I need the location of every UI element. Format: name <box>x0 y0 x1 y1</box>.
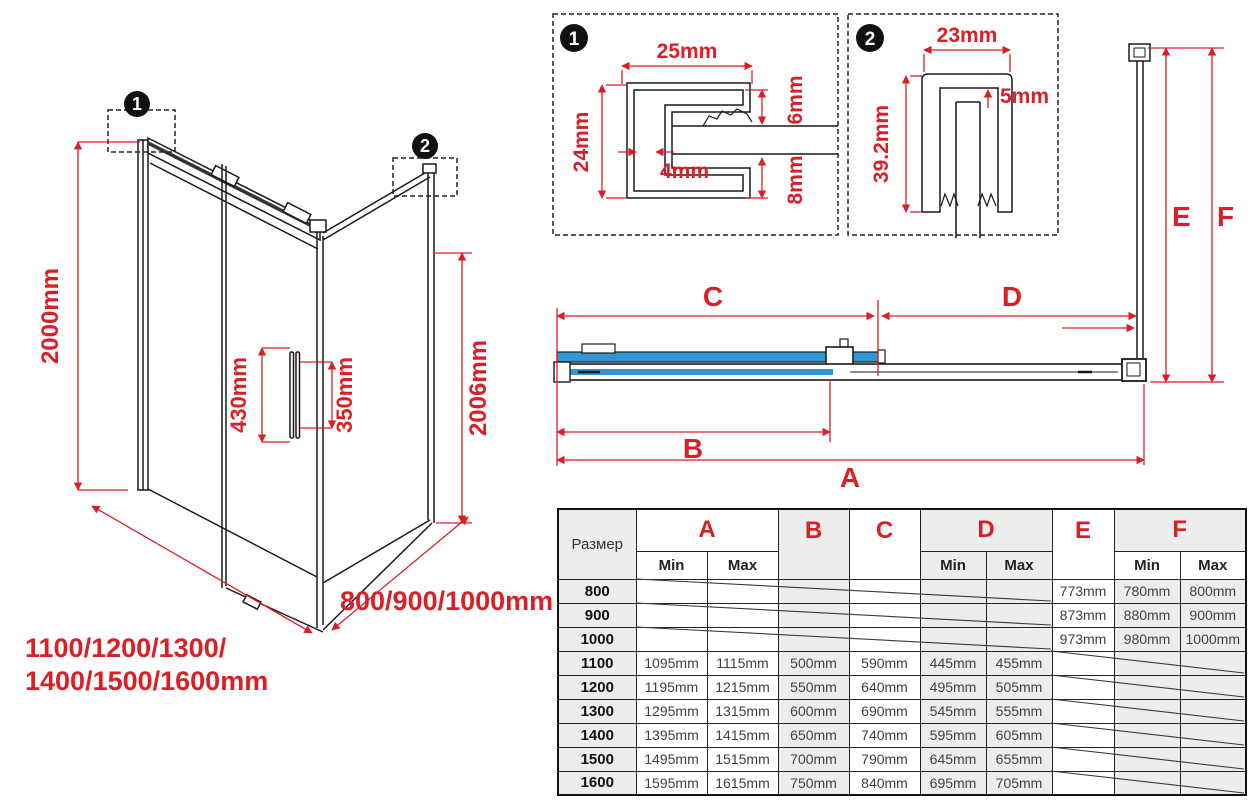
dim-e-label: E <box>1172 201 1191 232</box>
dim-5mm-label: 5mm <box>1000 85 1049 108</box>
dim-25mm-label: 25mm <box>657 40 718 63</box>
table-row: 1300 1295mm 1315mm 600mm 690mm 545mm 555… <box>558 699 1246 723</box>
f-min-header: Min <box>1114 551 1180 579</box>
col-header-f: F <box>1114 509 1246 551</box>
table-row: 900 873mm 880mm 900mm <box>558 603 1246 627</box>
a-max-header: Max <box>707 551 778 579</box>
dim-39mm-label: 39.2mm <box>870 105 893 183</box>
door-handle <box>290 352 300 438</box>
corner-bracket <box>310 220 326 232</box>
dim-2000mm-label: 2000mm <box>37 268 64 364</box>
dim-a-label: A <box>840 462 860 493</box>
dim-2006mm-label: 2006mm <box>465 340 492 436</box>
track-right-cap <box>1122 359 1146 381</box>
bottom-edges <box>148 489 323 632</box>
detail-2-badge-number: 2 <box>865 29 876 50</box>
shower-enclosure-spec-sheet: 1 2 2000mm 2006mm 430mm 350mm <box>0 0 1250 800</box>
front-width-label-line1: 1100/1200/1300/ <box>25 633 227 663</box>
detail-2-callout: 2 23mm 5mm 39.2mm <box>848 14 1058 238</box>
detail-1-badge-number: 1 <box>569 29 580 50</box>
size-cell: 900 <box>558 603 636 627</box>
size-cell: 1400 <box>558 723 636 747</box>
f-max-header: Max <box>1180 551 1246 579</box>
col-header-a: A <box>636 509 778 551</box>
size-cell: 1200 <box>558 675 636 699</box>
col-header-c: C <box>849 509 920 579</box>
col-header-e: E <box>1052 509 1114 579</box>
top-rail <box>148 138 326 249</box>
dim-430mm-label: 430mm <box>226 357 251 433</box>
dim-430mm: 430mm <box>226 348 290 442</box>
dim-8mm-label: 8mm <box>784 155 807 204</box>
table-row: 800 773mm 780mm 800mm <box>558 579 1246 603</box>
badge-1-number: 1 <box>132 94 142 114</box>
table-row: 1000 973mm 980mm 1000mm <box>558 627 1246 651</box>
size-column-header: Размер <box>558 509 636 579</box>
front-width-label-line2: 1400/1500/1600mm <box>25 666 268 696</box>
size-cell: 800 <box>558 579 636 603</box>
dim-d-label: D <box>1002 281 1022 312</box>
dim-c-label: C <box>703 281 723 312</box>
table-row: 1400 1395mm 1415mm 650mm 740mm 595mm 605… <box>558 723 1246 747</box>
table-row: 1500 1495mm 1515mm 700mm 790mm 645mm 655… <box>558 747 1246 771</box>
dim-350mm-label: 350mm <box>332 357 357 433</box>
dim-6mm-label: 6mm <box>784 75 807 124</box>
dim-f-label: F <box>1217 201 1234 232</box>
wall-profile-left <box>138 140 148 490</box>
size-cell: 1300 <box>558 699 636 723</box>
col-header-b: B <box>778 509 849 579</box>
dim-2006mm: 2006mm <box>434 253 492 523</box>
dim-side-width: 800/900/1000mm <box>332 517 553 630</box>
dim-front-width: 1100/1200/1300/ 1400/1500/1600mm <box>25 506 312 696</box>
table-row: 1100 1095mm 1115mm 500mm 590mm 445mm 455… <box>558 651 1246 675</box>
size-cell: 1100 <box>558 651 636 675</box>
table-row: 1200 1195mm 1215mm 550mm 640mm 495mm 505… <box>558 675 1246 699</box>
dim-2000mm: 2000mm <box>37 142 140 490</box>
side-panel-plan <box>1129 44 1150 358</box>
dim-4mm-label: 4mm <box>660 160 709 183</box>
dim-350mm: 350mm <box>300 357 357 433</box>
size-cell: 1000 <box>558 627 636 651</box>
col-header-d: D <box>920 509 1052 551</box>
d-max-header: Max <box>986 551 1052 579</box>
d-min-header: Min <box>920 551 986 579</box>
dim-24mm-label: 24mm <box>570 112 593 173</box>
badge-2-number: 2 <box>420 136 430 156</box>
size-cell: 1500 <box>558 747 636 771</box>
isometric-view: 1 2 <box>108 91 457 632</box>
table-row: 1600 1595mm 1615mm 750mm 840mm 695mm 705… <box>558 771 1246 795</box>
detail-2-dimensions: 23mm 5mm 39.2mm <box>870 24 1049 212</box>
a-min-header: Min <box>636 551 707 579</box>
detail-1-callout: 1 25mm 24mm 4mm 6mm 8mm <box>553 14 838 235</box>
size-cell: 1600 <box>558 771 636 795</box>
fixed-glass-plan <box>561 369 833 375</box>
dim-23mm-label: 23mm <box>937 24 998 47</box>
size-table-grid: Размер A B C D E F Min Max Min Max Min M… <box>557 508 1247 796</box>
door-bracket <box>582 344 615 353</box>
side-width-label: 800/900/1000mm <box>340 586 553 616</box>
size-table: Размер A B C D E F Min Max Min Max Min M… <box>557 508 1245 795</box>
top-rail-section <box>922 74 1012 238</box>
detail-1-dimensions: 25mm 24mm 4mm 6mm 8mm <box>570 40 807 205</box>
corner-post <box>317 232 323 628</box>
